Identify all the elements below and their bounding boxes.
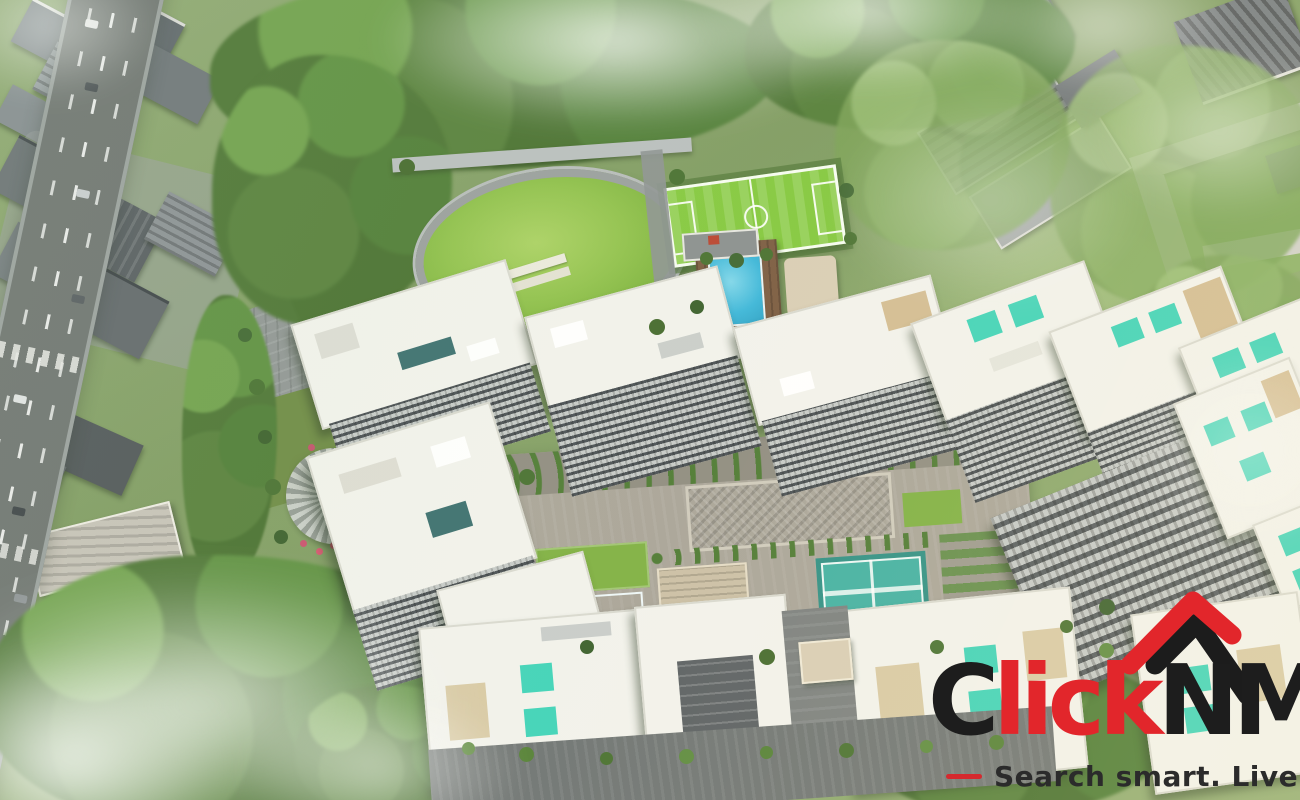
- tagline-text: Search smart. Live sm: [994, 760, 1300, 793]
- brand-mid-red: lick: [993, 644, 1158, 757]
- aerial-site-render: ClickNMo Search smart. Live sm: [0, 0, 1300, 800]
- tree-canopy: [212, 55, 452, 325]
- low-building: [798, 638, 853, 684]
- brand-letter-c: C: [928, 644, 993, 757]
- playground-accents: [300, 540, 307, 547]
- brand-suffix: NMo: [1158, 644, 1300, 757]
- center-circle: [743, 203, 770, 230]
- brand-watermark: ClickNMo Search smart. Live sm: [900, 575, 1300, 800]
- scatter-trees: [238, 328, 252, 342]
- brand-tagline: Search smart. Live sm: [946, 760, 1300, 793]
- clubhouse-building: [682, 228, 760, 261]
- crosswalk: [0, 533, 42, 566]
- brand-wordmark: ClickNMo: [928, 652, 1300, 749]
- tagline-dash: [946, 774, 982, 779]
- red-rooftop-detail: [708, 235, 720, 245]
- podium-lawn: [902, 489, 962, 527]
- haze: [830, 90, 1150, 310]
